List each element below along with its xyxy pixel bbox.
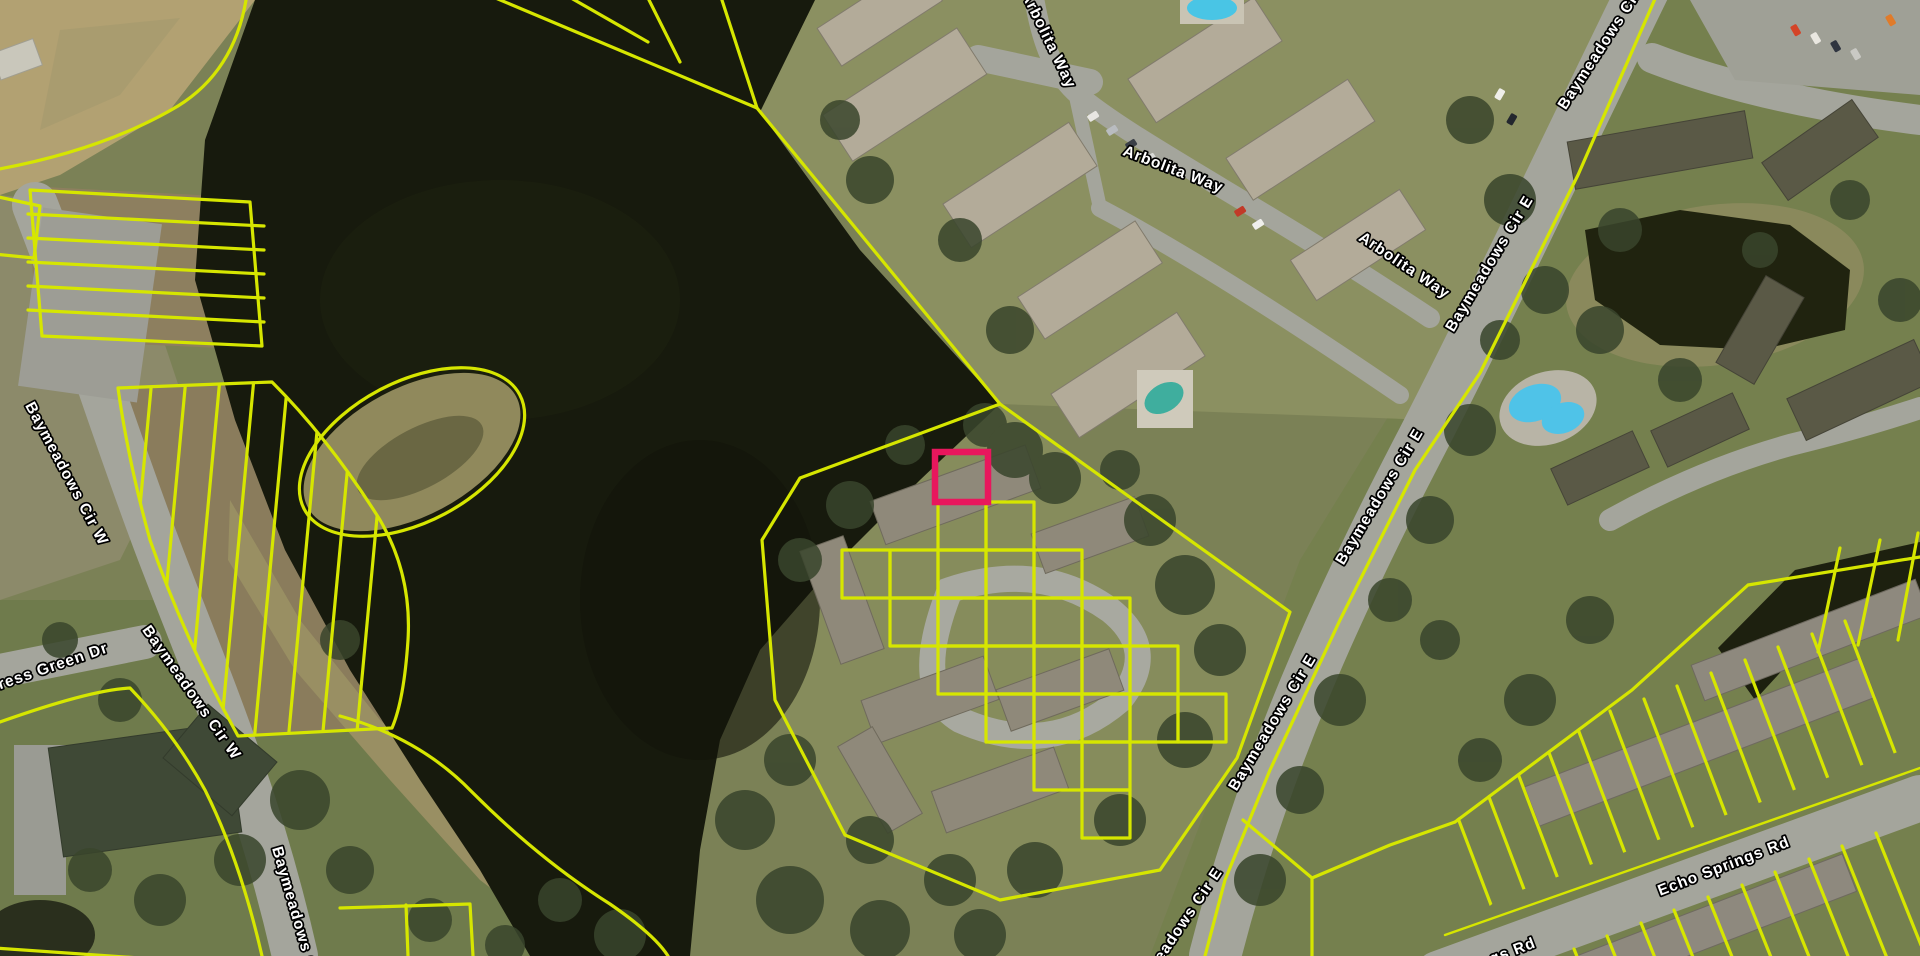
- map-viewport[interactable]: Arbolita WayArbolita WayArbolita WayBaym…: [0, 0, 1920, 956]
- aerial-map: Arbolita WayArbolita WayArbolita WayBaym…: [0, 0, 1920, 956]
